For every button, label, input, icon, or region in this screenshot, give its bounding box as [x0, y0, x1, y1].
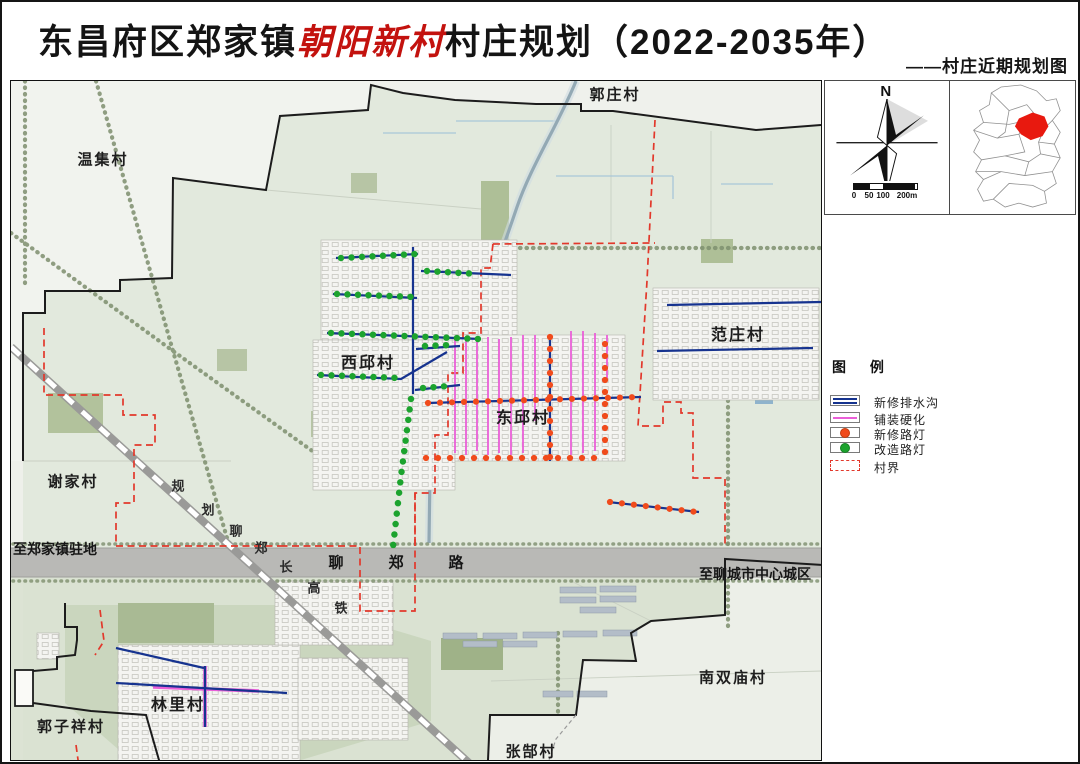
north-label: N — [880, 83, 891, 100]
scale-bar — [853, 183, 918, 190]
drain-line-icon — [830, 395, 860, 406]
title-suffix: 村庄规划（2022-2035年） — [445, 23, 889, 62]
railway-char-6: 铁 — [334, 598, 347, 617]
village-label-nanshuangmiao: 南双庙村 — [699, 667, 767, 688]
railway-char-1: 划 — [201, 500, 214, 519]
legend-label-renovated-lamp: 改造路灯 — [874, 441, 926, 458]
scale-tick-50: 50 — [865, 191, 874, 200]
railway-char-5: 高 — [307, 578, 320, 597]
title-prefix: 东昌府区郑家镇 — [38, 23, 297, 62]
railway-char-0: 规 — [171, 476, 184, 495]
village-label-guozhuang: 郭庄村 — [589, 84, 640, 105]
paving-line-icon — [830, 412, 860, 423]
compass-rose-icon — [825, 99, 949, 181]
village-label-wenji: 温集村 — [77, 149, 128, 170]
railway-char-2: 聊 — [229, 521, 242, 540]
location-inset-map — [950, 81, 1075, 214]
scale-tick-200: 200m — [897, 191, 917, 200]
road-label-east: 至聊城市中心城区 — [699, 564, 811, 584]
map-art — [11, 81, 821, 760]
sidebar-panels: N — [824, 80, 1076, 215]
road-char-liao: 聊 — [328, 552, 343, 573]
legend-title: 图 例 — [832, 357, 894, 377]
page-title: 东昌府区郑家镇朝阳新村村庄规划（2022-2035年） — [38, 14, 889, 65]
legend-label-drain: 新修排水沟 — [874, 394, 939, 411]
village-label-fanzhuang: 范庄村 — [711, 321, 765, 345]
scale-ticks: 0 50 100 200m — [825, 191, 949, 203]
highlighted-town-region — [1015, 113, 1048, 141]
village-label-dongqiu: 东邱村 — [496, 404, 550, 428]
scale-tick-0: 0 — [852, 191, 856, 200]
village-boundary-icon — [830, 460, 860, 471]
scale-tick-100: 100 — [876, 191, 889, 200]
title-highlight: 朝阳新村 — [297, 22, 445, 63]
village-label-zhanggao: 张郜村 — [505, 741, 556, 762]
map-canvas: 郭庄村 温集村 西邱村 东邱村 范庄村 谢家村 林里村 郭子祥村 张郜村 南双庙… — [10, 80, 822, 761]
compass-panel: N — [825, 81, 950, 214]
road-char-lu: 路 — [448, 552, 463, 573]
map-subtitle: ——村庄近期规划图 — [906, 52, 1068, 77]
railway-char-3: 郑 — [254, 538, 267, 557]
legend-label-boundary: 村界 — [874, 459, 900, 476]
title-bar: 东昌府区郑家镇朝阳新村村庄规划（2022-2035年） ——村庄近期规划图 — [2, 2, 1078, 77]
village-label-linli: 林里村 — [151, 691, 205, 715]
village-label-xiejia: 谢家村 — [47, 471, 98, 492]
sidebar: N — [824, 80, 1076, 759]
plan-sheet: 东昌府区郑家镇朝阳新村村庄规划（2022-2035年） ——村庄近期规划图 — [0, 0, 1080, 764]
village-label-xiqiu: 西邱村 — [341, 349, 395, 373]
village-label-guozixiang: 郭子祥村 — [37, 716, 105, 737]
new-lamp-icon — [830, 427, 860, 438]
renovated-lamp-icon — [830, 442, 860, 453]
road-char-zheng: 郑 — [388, 552, 403, 573]
railway-char-4: 长 — [279, 557, 292, 576]
location-inset-panel — [950, 81, 1075, 214]
road-label-west: 至郑家镇驻地 — [13, 539, 97, 559]
